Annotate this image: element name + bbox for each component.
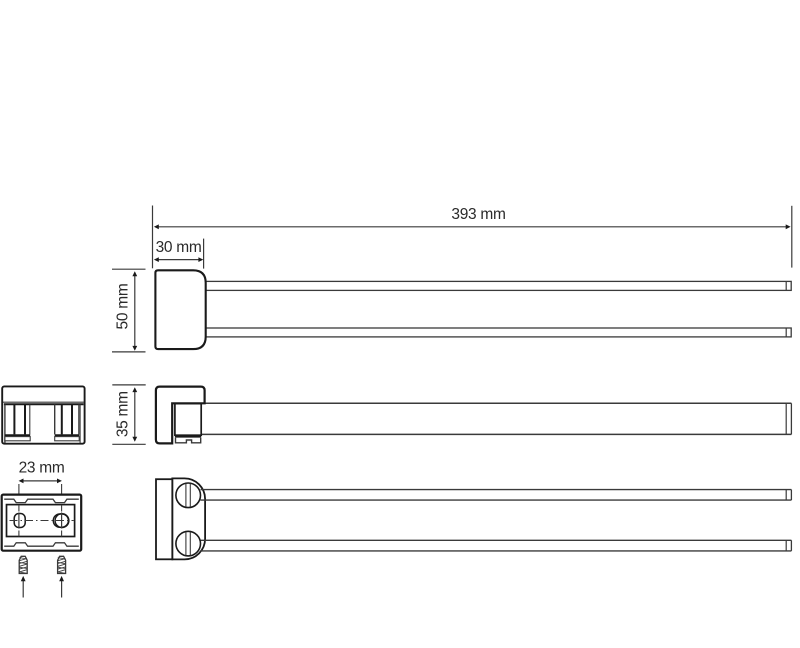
svg-text:23 mm: 23 mm [19,460,65,477]
svg-text:50 mm: 50 mm [114,284,131,330]
svg-text:35 mm: 35 mm [114,391,131,437]
svg-text:393 mm: 393 mm [451,206,505,223]
svg-text:30 mm: 30 mm [156,239,202,256]
